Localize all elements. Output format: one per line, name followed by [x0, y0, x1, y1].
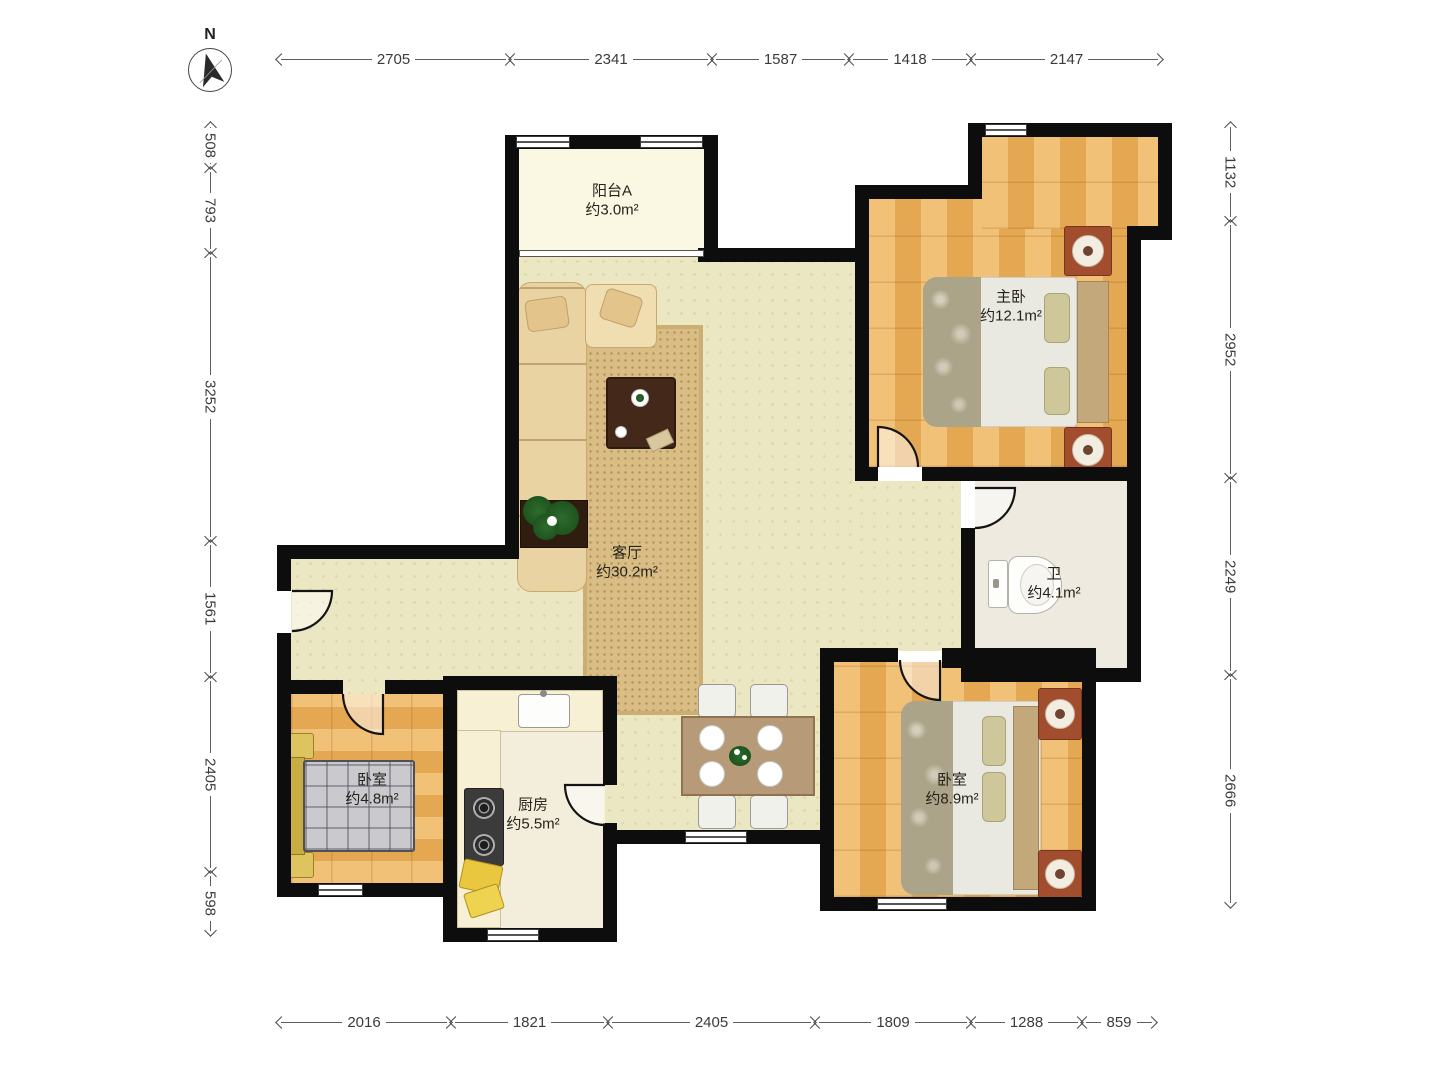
bedroom2-lamp-center: [1055, 869, 1065, 879]
master-lamp-center: [1083, 445, 1093, 455]
dim-line: [1230, 598, 1231, 671]
wall: [961, 668, 1141, 682]
dim-arrow: [204, 924, 217, 937]
bedroom2-door-arc: [898, 658, 942, 702]
floor-plan: 阳台A 约3.0m² 主卧 约12.1m² 客厅 约30.2m² 卫 约4.1m…: [0, 0, 1440, 1080]
room-area: 约5.5m²: [506, 815, 559, 834]
master-bed-headboard: [1077, 281, 1109, 423]
window: [487, 929, 539, 941]
dim-line: [1230, 813, 1231, 903]
dim-label: 2147: [1045, 52, 1088, 67]
wall: [505, 135, 519, 559]
dining-chair: [698, 795, 736, 829]
wall: [603, 676, 617, 785]
kitchen-door-arc: [563, 783, 607, 827]
dim-line: [455, 1022, 508, 1023]
dim-bottom-3: 1809: [815, 1015, 971, 1029]
dim-arrow: [204, 251, 217, 264]
wall: [277, 545, 519, 559]
dining-flower-dot: [734, 749, 740, 755]
floor-hallway: [855, 481, 961, 651]
balcony-sliding-door: [519, 250, 704, 257]
wall: [1158, 123, 1172, 240]
stove-burner: [473, 834, 495, 856]
dim-line: [1230, 482, 1231, 555]
dim-label: 859: [1101, 1015, 1136, 1030]
stove-burner: [473, 797, 495, 819]
room-label-balcony: 阳台A 约3.0m²: [585, 182, 638, 220]
compass-needle-icon: [183, 43, 236, 96]
room-area: 约30.2m²: [596, 563, 658, 582]
dim-label: 2405: [690, 1015, 733, 1030]
dining-chair: [750, 684, 788, 718]
dim-label: 2016: [342, 1015, 385, 1030]
wall: [922, 467, 1141, 481]
room-label-living: 客厅 约30.2m²: [596, 544, 658, 582]
window: [318, 884, 363, 896]
sofa-pillow: [524, 295, 570, 333]
dining-chair: [750, 795, 788, 829]
wall: [855, 467, 878, 481]
dim-label: 3252: [203, 375, 218, 418]
dim-left-1: 793: [203, 168, 217, 253]
dim-label: 2666: [1223, 769, 1238, 812]
bedroom1-door-arc: [341, 692, 385, 736]
room-name: 主卧: [980, 288, 1042, 307]
dining-chair: [698, 684, 736, 718]
dim-right-3: 2666: [1223, 675, 1237, 907]
dim-label: 598: [203, 886, 218, 921]
dim-line: [281, 1022, 342, 1023]
room-name: 阳台A: [585, 182, 638, 201]
dim-left-5: 598: [203, 872, 217, 935]
room-name: 厨房: [506, 796, 559, 815]
dim-label: 1288: [1005, 1015, 1048, 1030]
dim-right-1: 2952: [1223, 221, 1237, 478]
dim-bottom-2: 2405: [608, 1015, 815, 1029]
dim-label: 1132: [1223, 151, 1238, 193]
dim-arrow: [1145, 1016, 1158, 1029]
dim-arrow: [275, 1016, 288, 1029]
dining-plate: [699, 725, 725, 751]
kitchen-sink: [518, 694, 570, 728]
dim-line: [210, 419, 211, 537]
dim-line: [733, 1022, 811, 1023]
room-area: 约8.9m²: [925, 790, 978, 809]
compass-north-label: N: [196, 26, 224, 44]
bedroom2-lamp-center: [1055, 709, 1065, 719]
dim-arrow: [813, 1016, 826, 1029]
dim-arrow: [1224, 476, 1237, 489]
dim-label: 2249: [1223, 555, 1238, 598]
room-area: 约3.0m²: [585, 201, 638, 220]
wall: [277, 633, 291, 897]
room-label-bath: 卫 约4.1m²: [1027, 565, 1080, 603]
dim-line: [1230, 679, 1231, 769]
wall: [277, 883, 457, 897]
bedroom2-pillow: [982, 716, 1006, 766]
dim-arrow: [508, 53, 521, 66]
dim-arrow: [969, 53, 982, 66]
master-pillow: [1044, 293, 1070, 343]
wall: [698, 248, 869, 262]
dim-line: [281, 59, 372, 60]
window: [516, 136, 570, 148]
dim-top-4: 2147: [971, 52, 1162, 66]
wall: [820, 648, 834, 911]
dim-arrow: [449, 1016, 462, 1029]
dim-line: [1230, 371, 1231, 474]
wall: [855, 185, 869, 481]
dim-label: 2405: [203, 753, 218, 796]
floor-master-bedroom: [982, 137, 1158, 229]
dim-line: [386, 1022, 447, 1023]
room-area: 约12.1m²: [980, 307, 1042, 326]
dim-right-2: 2249: [1223, 478, 1237, 675]
wall: [443, 676, 617, 690]
toilet-flush-button: [993, 579, 999, 588]
dim-line: [1230, 225, 1231, 328]
wall: [1082, 648, 1096, 911]
dim-arrow: [204, 166, 217, 179]
dim-top-0: 2705: [277, 52, 510, 66]
room-area: 约4.8m²: [345, 790, 398, 809]
dim-line: [210, 681, 211, 753]
wall: [443, 676, 457, 942]
coffee-table-plant: [636, 394, 644, 402]
dim-line: [415, 59, 506, 60]
room-label-kitchen: 厨房 约5.5m²: [506, 796, 559, 834]
window: [985, 124, 1027, 136]
master-bed-blanket: [923, 277, 981, 427]
dim-line: [633, 59, 708, 60]
dim-bottom-0: 2016: [277, 1015, 451, 1029]
dim-arrow: [1151, 53, 1164, 66]
dining-plate: [699, 761, 725, 787]
dining-flowers: [729, 746, 751, 766]
dim-arrow: [847, 53, 860, 66]
dim-arrow: [1080, 1016, 1093, 1029]
dim-label: 1418: [888, 52, 931, 67]
dim-arrow: [204, 870, 217, 883]
dim-left-0: 508: [203, 123, 217, 168]
kitchen-faucet: [540, 690, 547, 697]
dim-line: [210, 796, 211, 868]
dim-bottom-4: 1288: [971, 1015, 1082, 1029]
dining-flower-dot: [742, 755, 747, 760]
room-label-bedroom1: 卧室 约4.8m²: [345, 771, 398, 809]
dining-plate: [757, 761, 783, 787]
window: [640, 136, 703, 148]
dim-arrow: [1224, 219, 1237, 232]
window: [685, 831, 747, 843]
dim-line: [612, 1022, 690, 1023]
wall: [961, 528, 975, 668]
coffee-table-cup: [615, 426, 627, 438]
wall: [855, 185, 982, 199]
room-name: 卧室: [925, 771, 978, 790]
wall: [277, 545, 291, 591]
dim-left-3: 1561: [203, 541, 217, 677]
wall: [704, 135, 718, 262]
dim-arrow: [204, 675, 217, 688]
dim-left-4: 2405: [203, 677, 217, 872]
dim-bottom-1: 1821: [451, 1015, 608, 1029]
dim-arrow: [969, 1016, 982, 1029]
dim-label: 1561: [203, 587, 218, 630]
bathroom-door-arc: [973, 486, 1017, 530]
dim-label: 2341: [589, 52, 632, 67]
dim-line: [819, 1022, 871, 1023]
dim-label: 1809: [871, 1015, 914, 1030]
dim-arrow: [204, 539, 217, 552]
bedroom2-bed-headboard: [1013, 706, 1039, 890]
plant-center: [547, 516, 557, 526]
wall: [820, 897, 1096, 911]
master-lamp-center: [1083, 246, 1093, 256]
wall: [942, 648, 1096, 668]
room-area: 约4.1m²: [1027, 584, 1080, 603]
dim-label: 793: [203, 193, 218, 228]
room-name: 客厅: [596, 544, 658, 563]
dim-label: 1821: [508, 1015, 551, 1030]
dim-arrow: [606, 1016, 619, 1029]
wall: [277, 680, 343, 694]
dim-label: 1587: [759, 52, 802, 67]
room-label-bedroom2: 卧室 约8.9m²: [925, 771, 978, 809]
dim-arrow: [710, 53, 723, 66]
room-name: 卫: [1027, 565, 1080, 584]
window: [877, 898, 947, 910]
dining-plate: [757, 725, 783, 751]
dim-line: [975, 59, 1045, 60]
dim-left-2: 3252: [203, 253, 217, 541]
wall: [1127, 226, 1141, 682]
room-name: 卧室: [345, 771, 398, 790]
dim-label: 2952: [1223, 328, 1238, 371]
dim-line: [514, 59, 589, 60]
dim-arrow: [1224, 673, 1237, 686]
dim-top-3: 1418: [849, 52, 971, 66]
dim-line: [210, 257, 211, 375]
dim-arrow: [275, 53, 288, 66]
entrance-door-arc: [290, 589, 334, 633]
master-pillow: [1044, 367, 1070, 415]
dim-top-1: 2341: [510, 52, 712, 66]
dim-line: [1088, 59, 1158, 60]
dim-arrow: [1224, 121, 1237, 134]
dim-arrow: [1224, 896, 1237, 909]
room-label-master: 主卧 约12.1m²: [980, 288, 1042, 326]
dim-top-2: 1587: [712, 52, 849, 66]
dim-bottom-5: 859: [1082, 1015, 1156, 1029]
bedroom2-pillow: [982, 772, 1006, 822]
master-door-arc: [876, 425, 920, 469]
dim-right-0: 1132: [1223, 123, 1237, 221]
dim-label: 2705: [372, 52, 415, 67]
